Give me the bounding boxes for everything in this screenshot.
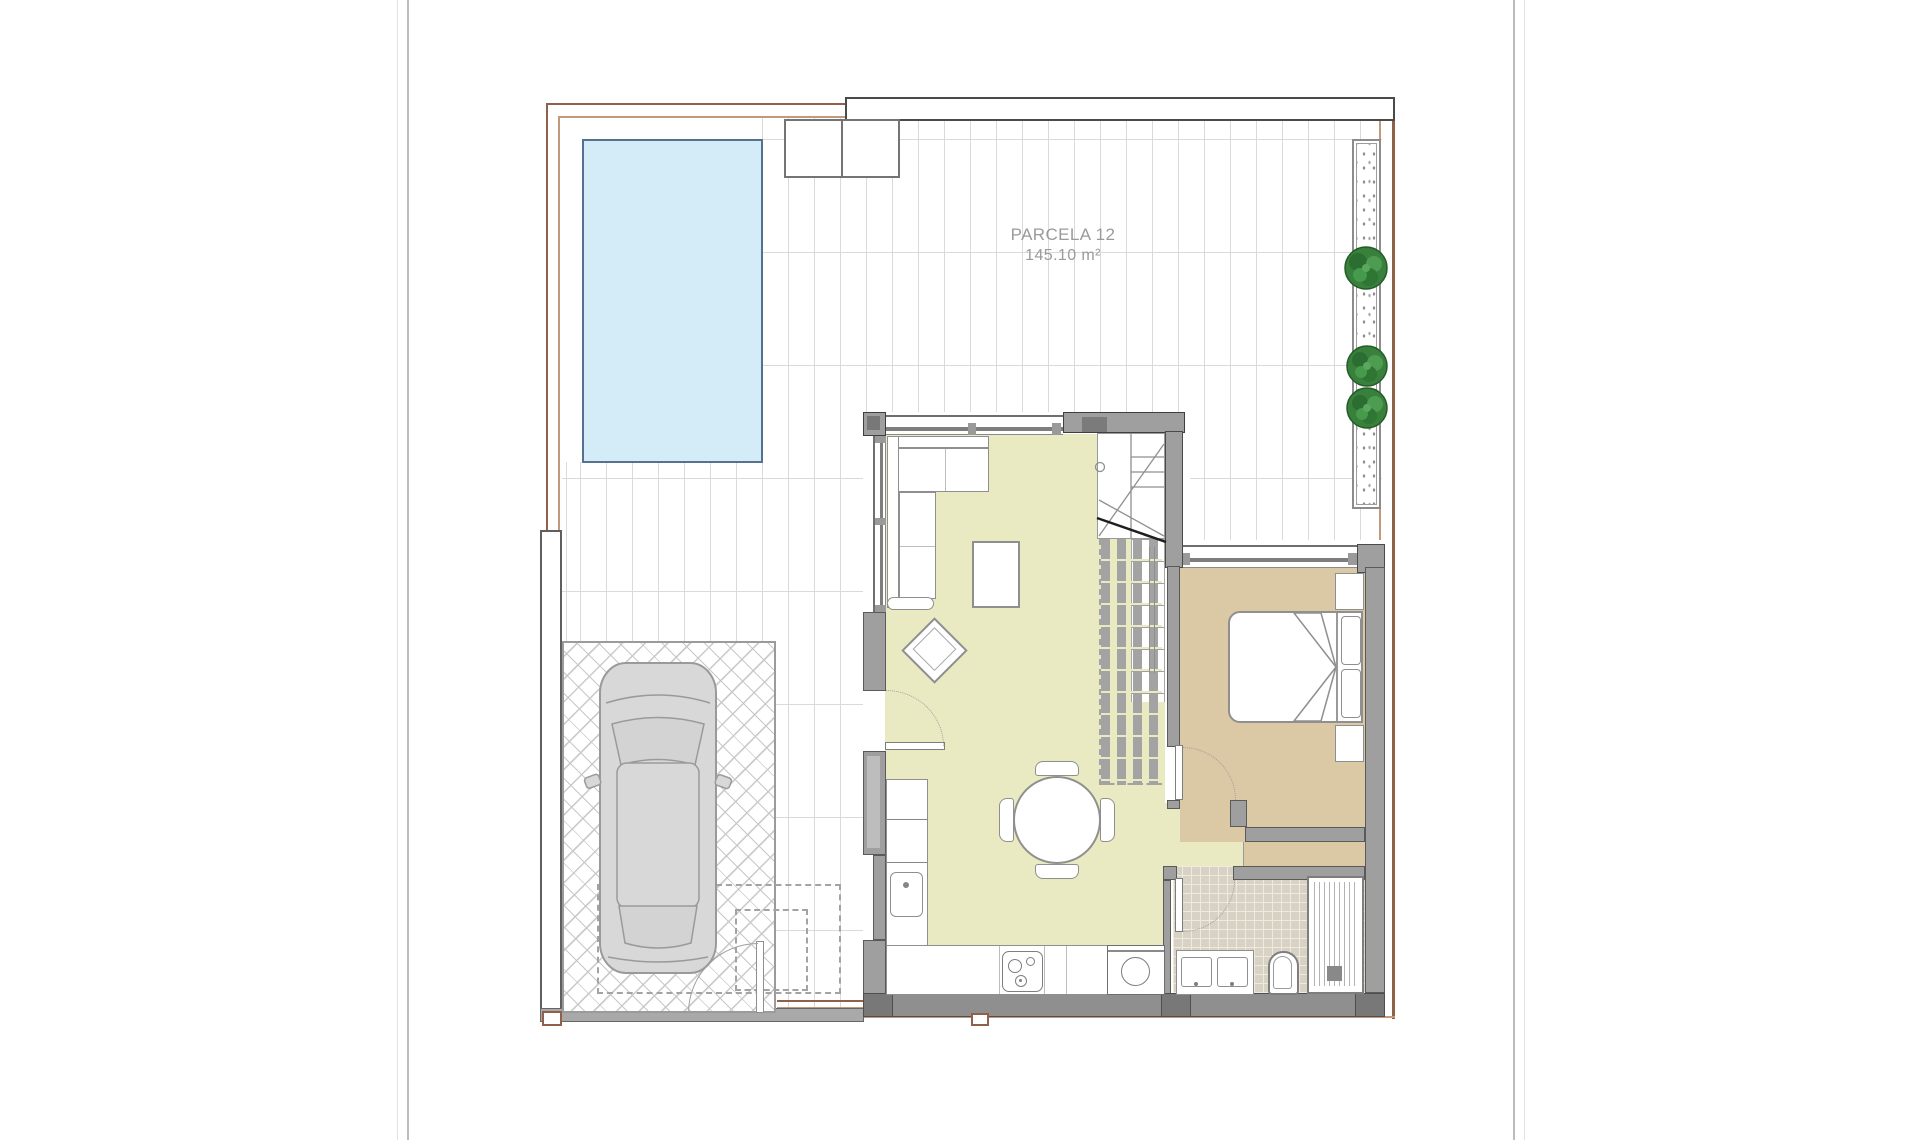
wall-insulation bbox=[867, 756, 880, 848]
boundary-top-inner bbox=[558, 116, 846, 118]
shower-tray bbox=[1307, 876, 1364, 994]
bedroom-window-north bbox=[1183, 545, 1357, 568]
parcel-name-text: PARCELA 12 bbox=[968, 224, 1158, 246]
kitchen-counter-south bbox=[886, 945, 1110, 995]
toilet bbox=[1268, 951, 1299, 995]
window-mullion bbox=[968, 423, 976, 435]
cooktop bbox=[1002, 951, 1043, 992]
bedroom-closet-floor bbox=[1243, 842, 1365, 866]
coffee-table bbox=[972, 541, 1020, 608]
counter-seam bbox=[887, 862, 927, 863]
dining-chair-north bbox=[1035, 761, 1079, 776]
pillow bbox=[1341, 616, 1361, 665]
floor-plan-canvas: PARCELA 12 145.10 m² bbox=[0, 0, 1920, 1140]
living-window-west bbox=[873, 436, 886, 612]
sofa-seat-left bbox=[899, 492, 936, 599]
page-edge-left-outer bbox=[397, 0, 398, 1140]
nightstand-south bbox=[1335, 725, 1364, 762]
sofa-armrest bbox=[887, 597, 934, 610]
window-jamb bbox=[875, 605, 886, 612]
boundary-right-outer bbox=[1392, 100, 1395, 1019]
wall-stair-east bbox=[1165, 431, 1183, 568]
outdoor-storage-box bbox=[784, 119, 900, 178]
stair-handrail bbox=[1149, 547, 1155, 673]
washer-drum bbox=[1121, 957, 1150, 986]
window-jamb bbox=[1183, 553, 1190, 565]
window-mullion bbox=[875, 518, 886, 525]
column-core bbox=[1082, 417, 1107, 432]
shower-drain bbox=[1327, 966, 1342, 981]
toilet-bowl bbox=[1273, 956, 1292, 989]
dining-chair-south bbox=[1035, 864, 1079, 879]
wall-west-4 bbox=[863, 940, 886, 995]
wall-bedroom-west-stub bbox=[1167, 800, 1180, 809]
dining-chair-east bbox=[1100, 798, 1115, 842]
counter-seam bbox=[1044, 946, 1045, 994]
bathroom-door-leaf bbox=[1175, 878, 1183, 932]
counter-seam bbox=[999, 946, 1000, 994]
sofa-back-top bbox=[887, 436, 989, 448]
boundary-left-inner bbox=[558, 116, 560, 531]
wall-west-2 bbox=[863, 751, 886, 855]
living-window-north bbox=[886, 415, 1063, 435]
parcel-label: PARCELA 12 145.10 m² bbox=[968, 224, 1158, 266]
wall-south-pillar bbox=[1355, 993, 1385, 1017]
window-jamb bbox=[1348, 553, 1357, 565]
boundary-top-outer bbox=[546, 103, 846, 105]
dining-table bbox=[1013, 776, 1101, 864]
roof-overhang bbox=[845, 97, 1395, 121]
stair-upper-flight bbox=[1097, 433, 1165, 539]
window-jamb bbox=[875, 436, 886, 443]
dining-chair-west bbox=[999, 798, 1014, 842]
washing-machine bbox=[1107, 945, 1165, 995]
planter-gravel bbox=[1356, 143, 1377, 505]
pillow bbox=[1341, 669, 1361, 718]
sofa-seat-top bbox=[898, 448, 989, 492]
burner bbox=[1026, 957, 1035, 966]
wall-south-pillar bbox=[1161, 993, 1191, 1017]
wall-bedroom-south bbox=[1245, 827, 1365, 842]
burner bbox=[1015, 975, 1027, 987]
wall-west-3 bbox=[873, 855, 886, 940]
wall-corner-top-left bbox=[863, 412, 886, 436]
cushion-seam bbox=[900, 546, 935, 547]
kitchen-counter-west bbox=[886, 779, 928, 947]
wall-east bbox=[1365, 567, 1385, 993]
wall-south bbox=[863, 993, 1385, 1017]
sink-faucet bbox=[1194, 982, 1198, 986]
boundary-marker-mid bbox=[971, 1013, 989, 1026]
wall-south-pillar bbox=[863, 993, 893, 1017]
page-edge-left-inner bbox=[407, 0, 409, 1140]
sink-drain bbox=[903, 882, 909, 888]
counter-seam bbox=[887, 819, 927, 820]
wall-west-1 bbox=[863, 612, 886, 691]
page-edge-right-inner bbox=[1513, 0, 1515, 1140]
page-edge-right-outer bbox=[1524, 0, 1525, 1140]
sofa-back-left bbox=[887, 436, 899, 608]
bedroom-door-leaf bbox=[1175, 745, 1183, 800]
window-jamb bbox=[1052, 423, 1061, 435]
tile-mask-above-pool bbox=[583, 118, 761, 140]
wall-hall-pillar bbox=[1230, 800, 1247, 827]
storage-divider bbox=[841, 121, 843, 176]
column-core bbox=[867, 416, 880, 430]
boundary-left-outer bbox=[546, 103, 548, 531]
burner bbox=[1008, 959, 1022, 973]
parcel-area-text: 145.10 m² bbox=[968, 246, 1158, 266]
kitchen-sink bbox=[890, 872, 923, 917]
washer-panel bbox=[1108, 950, 1164, 952]
swimming-pool bbox=[582, 139, 763, 463]
wall-bedroom-west bbox=[1167, 566, 1180, 747]
window-glazing bbox=[1183, 558, 1357, 562]
counter-seam bbox=[1066, 946, 1067, 994]
sink-faucet bbox=[1230, 982, 1234, 986]
planter-bed bbox=[1352, 139, 1381, 509]
headboard-line bbox=[1336, 613, 1338, 721]
nightstand-north bbox=[1335, 573, 1364, 610]
side-table-inner bbox=[913, 627, 957, 671]
tile-mask-left-of-pool bbox=[562, 118, 584, 462]
cushion-seam bbox=[945, 449, 946, 491]
boundary-wall-left bbox=[540, 530, 562, 1022]
burner-core bbox=[1019, 979, 1022, 982]
boundary-marker-left bbox=[542, 1011, 562, 1026]
wall-top-right bbox=[1063, 412, 1185, 433]
boundary-bottom-seg1 bbox=[777, 1000, 863, 1002]
